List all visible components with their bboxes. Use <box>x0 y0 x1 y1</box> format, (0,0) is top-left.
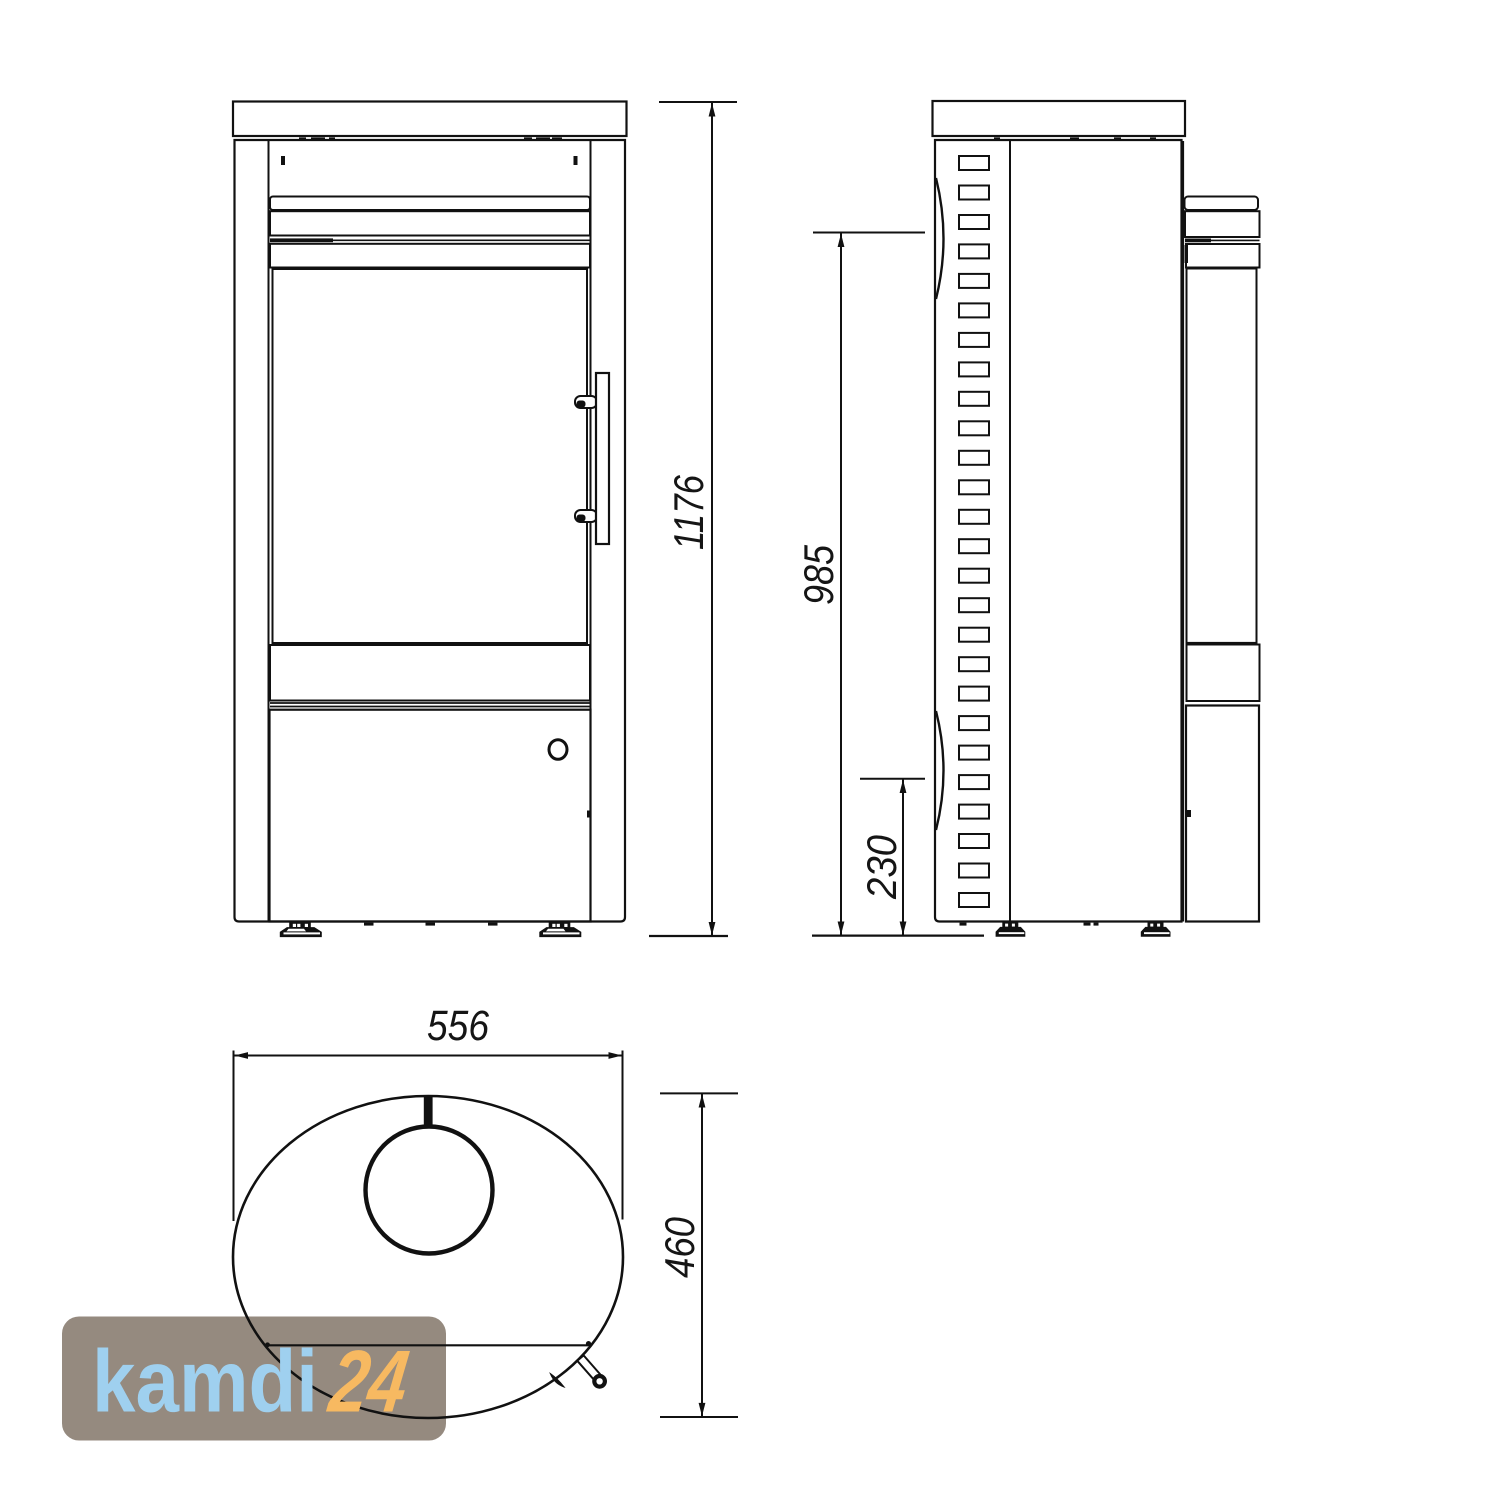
svg-text:1176: 1176 <box>665 474 712 550</box>
svg-text:460: 460 <box>656 1216 703 1278</box>
svg-text:230: 230 <box>858 834 905 899</box>
svg-text:985: 985 <box>795 544 842 605</box>
svg-text:24: 24 <box>323 1332 414 1431</box>
svg-text:kamdi: kamdi <box>92 1332 318 1431</box>
svg-text:556: 556 <box>427 1002 489 1050</box>
